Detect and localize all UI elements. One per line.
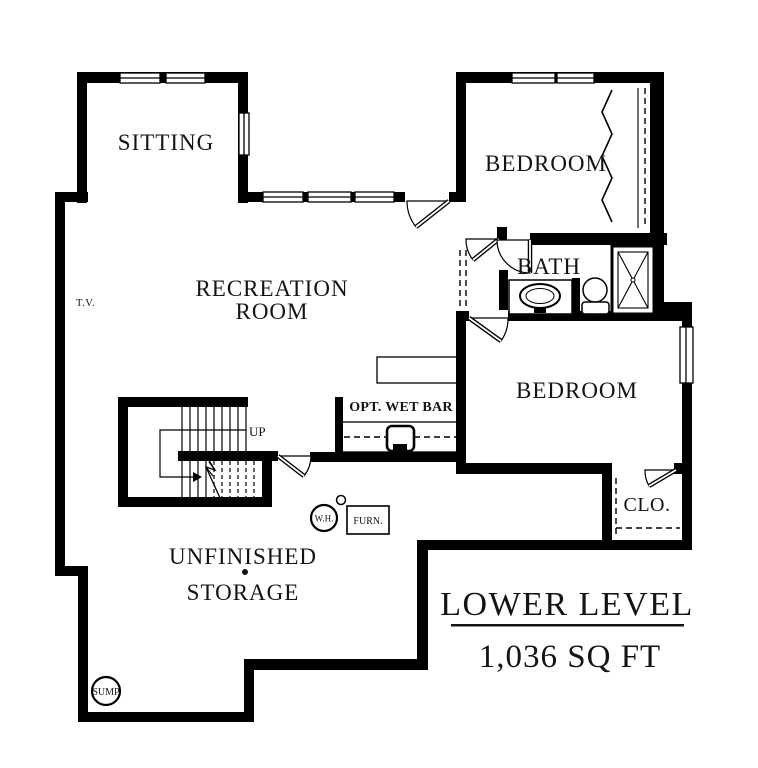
shower (612, 246, 654, 314)
room-label-recreation-1: RECREATION (195, 276, 348, 301)
title-block: LOWER LEVEL 1,036 SQ FT (440, 586, 694, 675)
window (263, 192, 303, 202)
door-closet (645, 470, 676, 486)
window (512, 73, 555, 83)
floor-plan: W.H. FURN. SUMP SITTING RECREATION ROOM … (0, 0, 758, 768)
bullet-separator (242, 569, 248, 575)
room-label-closet: CLO. (624, 494, 671, 516)
toilet (582, 278, 609, 314)
room-label-storage-1: UNFINISHED (169, 544, 317, 569)
door-recreation (407, 201, 449, 227)
wet-bar-sink-drain (393, 444, 407, 450)
cased-opening (460, 250, 466, 307)
sump-label: SUMP (92, 687, 120, 698)
window (680, 327, 693, 383)
room-label-bedroom-upper: BEDROOM (485, 151, 607, 176)
title-underline (451, 624, 684, 627)
window (308, 192, 351, 202)
annotation-tv: T.V. (76, 298, 95, 309)
door-bedroom-lower (469, 318, 508, 341)
annotation-wet-bar: OPT. WET BAR (349, 400, 453, 415)
window (239, 113, 249, 155)
room-label-bath: BATH (517, 254, 581, 279)
water-heater-label: W.H. (315, 514, 334, 524)
room-label-bedroom-lower: BEDROOM (516, 378, 638, 403)
annotation-up: UP (249, 424, 266, 439)
plan-title: LOWER LEVEL (440, 586, 694, 623)
wet-bar-upper-counter (377, 357, 460, 383)
windows (120, 73, 693, 383)
bedroom-closet (602, 88, 645, 228)
window (120, 73, 160, 83)
window (355, 192, 394, 202)
window (557, 73, 594, 83)
window (166, 73, 205, 83)
plan-area: 1,036 SQ FT (479, 639, 661, 675)
small-pipe-symbol (337, 496, 346, 505)
room-label-recreation-2: ROOM (235, 299, 308, 324)
furnace-label: FURN. (353, 516, 382, 527)
door-bedroom-upper (466, 239, 499, 260)
vanity-sink (509, 280, 572, 314)
room-label-sitting: SITTING (118, 130, 214, 155)
room-label-storage-2: STORAGE (187, 580, 300, 605)
door-stair-hall (278, 456, 311, 476)
